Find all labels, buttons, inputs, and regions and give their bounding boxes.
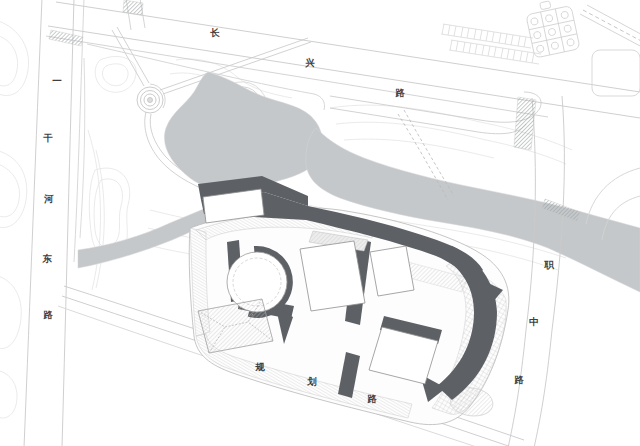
road-top-lines	[46, 2, 640, 118]
tree-grid	[524, 0, 580, 58]
road-label-left: 一 干 河 东 路	[41, 75, 62, 320]
road-right-char-3: 路	[514, 374, 524, 385]
block-b	[300, 241, 365, 311]
road-bottom-char-3: 路	[367, 393, 377, 404]
road-bottom-char-2: 划	[306, 376, 317, 387]
road-left-char-4: 东	[41, 253, 52, 264]
road-top-char-2: 兴	[304, 57, 315, 68]
road-left-char-2: 干	[42, 132, 53, 143]
road-left-lines	[24, 0, 84, 446]
road-left-char-1: 一	[52, 75, 62, 86]
road-right-char-1: 职	[543, 259, 554, 270]
site-plan-page: 一 干 河 东 路 长 兴 路 职 中 路 规 划 路	[0, 0, 640, 446]
road-right-lines	[508, 96, 564, 446]
crosswalk-right-road-upper	[514, 97, 536, 150]
parking-ticks-row2	[450, 40, 534, 63]
plaza-circles	[137, 84, 165, 113]
crosswalk-left-road	[49, 30, 83, 46]
road-bottom-char-1: 规	[254, 361, 265, 372]
parking-ticks-row1	[442, 24, 526, 47]
road-right-char-2: 中	[529, 316, 539, 327]
road-ne-corner	[580, 5, 640, 240]
road-top-char-1: 长	[209, 27, 220, 38]
site-plan-drawing: 一 干 河 东 路 长 兴 路 职 中 路 规 划 路	[0, 0, 640, 446]
parking-rows	[441, 24, 541, 64]
park-pond	[164, 72, 322, 191]
road-top-char-3: 路	[395, 87, 405, 98]
road-left-char-5: 路	[43, 309, 53, 320]
road-left-char-3: 河	[43, 193, 54, 204]
block-c	[370, 246, 414, 296]
